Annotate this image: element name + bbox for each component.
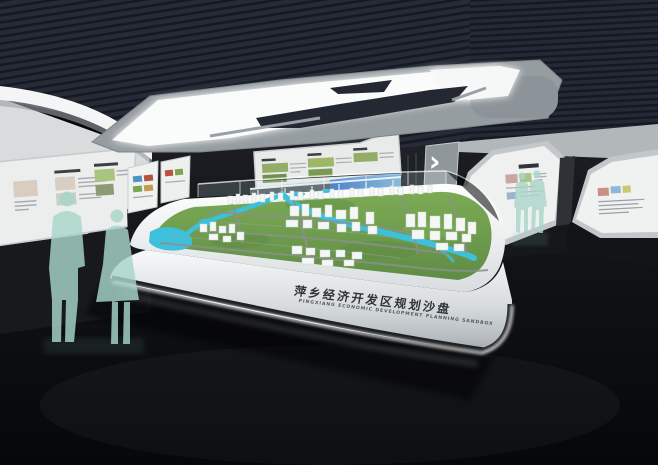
exhibition-hall-rendering: 萍乡经济开发区规划沙盘 PINGXIANG ECONOMIC DEVELOPME… — [0, 0, 658, 465]
figure-reflection-left — [44, 338, 144, 354]
scene-canvas — [0, 0, 658, 465]
figure-reflection — [512, 232, 548, 246]
